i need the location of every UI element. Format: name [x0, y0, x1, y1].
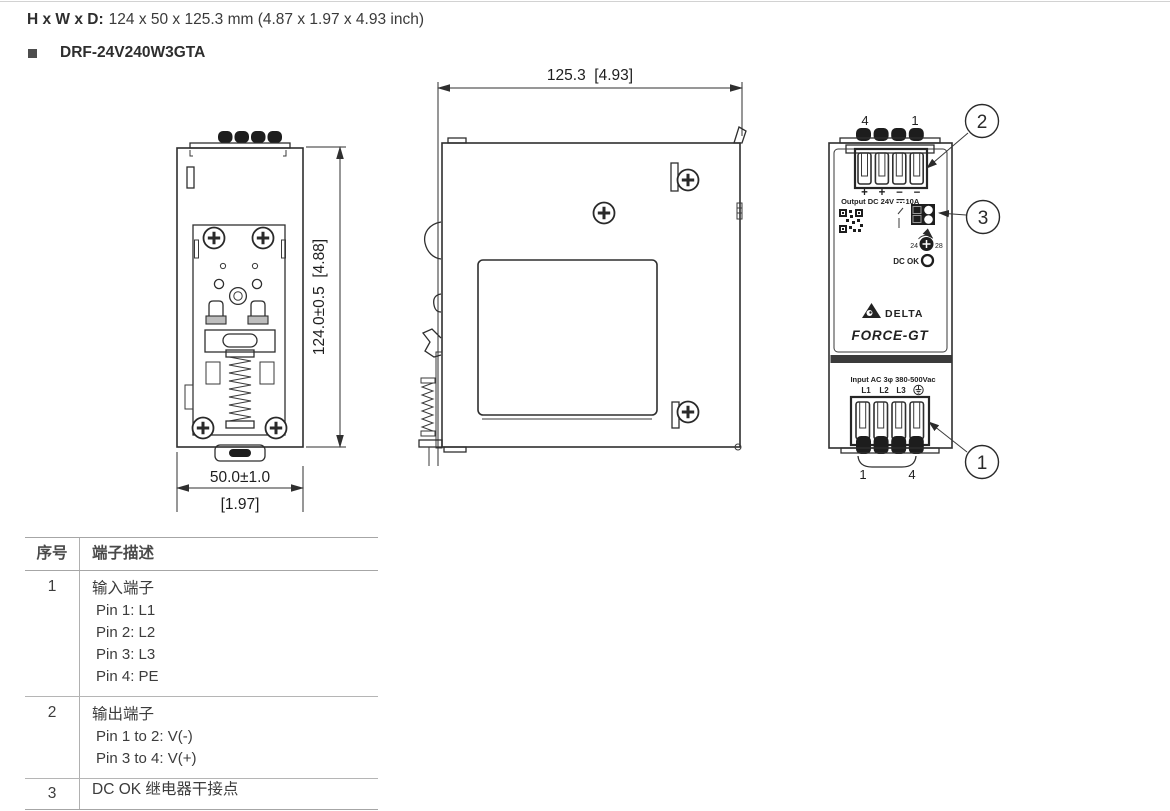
- din-clip-profile: [419, 222, 442, 466]
- output-terminal-block: [846, 145, 934, 188]
- dc-ok-led: [922, 255, 933, 266]
- output-pin1-label: 1: [911, 113, 918, 128]
- pilot-hole: [252, 263, 257, 268]
- brand-wordmark: DELTA: [885, 308, 923, 320]
- din-latch-spring: [226, 350, 254, 428]
- input-pin4-label: 4: [908, 467, 915, 482]
- pin-line: Pin 3 to 4: V(+): [92, 748, 378, 770]
- center-boss-inner: [234, 292, 242, 300]
- rear-vent-slot: [187, 167, 194, 188]
- input-pin-label: L3: [896, 386, 906, 395]
- rear-hook-left: [190, 150, 193, 156]
- side-vent-slot: [671, 163, 678, 191]
- table-row: 3 DC OK 继电器干接点: [25, 779, 378, 810]
- screw-icon: [678, 170, 699, 191]
- callout-1-number: 1: [977, 453, 988, 474]
- pilot-hole: [220, 263, 225, 268]
- callout-3-number: 3: [978, 208, 989, 229]
- input-pin-label: L2: [879, 386, 889, 395]
- dimensions-value: 124 x 50 x 125.3 mm (4.87 x 1.97 x 4.93 …: [109, 11, 424, 28]
- screw-icon: [253, 228, 274, 249]
- pin-line: Pin 2: L2: [92, 622, 378, 644]
- pin-range-brace: [858, 456, 916, 467]
- relay-contact-connector: [898, 204, 935, 228]
- delta-logo: DELTA: [862, 303, 923, 320]
- rear-view-drawing: 124.0±0.5 [4.88] 50.0±1.0 [1.97]: [177, 131, 346, 513]
- screw-icon: [204, 228, 225, 249]
- callout-2-number: 2: [977, 112, 988, 133]
- bullet-square-icon: [28, 49, 37, 58]
- table-row: 1 输入端子 Pin 1: L1 Pin 2: L2 Pin 3: L3 Pin…: [25, 571, 378, 697]
- dc-ok-indicator: DC OK: [893, 255, 933, 266]
- input-pin1-label: 1: [859, 467, 866, 482]
- series-name: FORCE-GT: [852, 328, 930, 343]
- width-dimension-mm: 50.0±1.0: [210, 469, 271, 486]
- pin-line: Pin 1 to 2: V(-): [92, 726, 378, 748]
- side-label-panel: [478, 260, 657, 419]
- front-dark-band: [831, 355, 952, 363]
- front-face-panel: [834, 149, 947, 352]
- voltage-adjust-pot: 24 28: [910, 235, 943, 251]
- adjust-min-label: 24: [910, 243, 918, 250]
- side-view-drawing: 125.3 [4.93]: [419, 67, 746, 466]
- table-header-description: 端子描述: [80, 538, 378, 570]
- side-ear-right: [260, 362, 274, 384]
- height-dimension: 124.0±0.5 [4.88]: [306, 147, 346, 447]
- page-top-divider: [0, 1, 1170, 2]
- callout-2: 2: [927, 105, 999, 169]
- pin-line: Pin 4: PE: [92, 666, 378, 688]
- callout-3: 3: [939, 201, 1000, 234]
- din-mid-bracket: [205, 330, 275, 352]
- center-boss: [230, 288, 247, 305]
- dc-ok-label: DC OK: [893, 257, 919, 266]
- row-number: 2: [25, 697, 80, 778]
- adjust-max-label: 28: [935, 243, 943, 250]
- datasheet-page: H x W x D:124 x 50 x 125.3 mm (4.87 x 1.…: [0, 0, 1170, 811]
- mount-hole: [214, 279, 223, 288]
- screw-icon: [266, 418, 287, 439]
- din-mount-plate: [193, 225, 287, 439]
- screw-icon: [594, 203, 615, 224]
- input-pin-row: L1 L2 L3: [861, 385, 923, 395]
- output-rating-label: Output DC 24V: [841, 197, 894, 206]
- pe-ground-icon: [914, 385, 923, 394]
- pin-line: Pin 3: L3: [92, 644, 378, 666]
- polarity-sign: −: [896, 187, 903, 199]
- side-top-tab: [734, 127, 746, 143]
- row-number: 1: [25, 571, 80, 696]
- input-rating-label: Input AC 3φ 380-500Vac: [850, 375, 935, 384]
- row-title: 输出端子: [92, 704, 378, 726]
- screw-icon: [678, 402, 699, 423]
- row-number: 3: [25, 779, 80, 809]
- rear-side-slot: [185, 385, 193, 409]
- input-pin-label: L1: [861, 386, 871, 395]
- screw-icon: [193, 418, 214, 439]
- side-ear-left: [206, 362, 220, 384]
- height-dimension-text: 124.0±0.5 [4.88]: [311, 239, 328, 355]
- table-row: 2 输出端子 Pin 1 to 2: V(-) Pin 3 to 4: V(+): [25, 697, 378, 779]
- rear-hook-right: [283, 150, 286, 156]
- front-view-drawing: 4 1: [829, 113, 952, 482]
- pin-line: Pin 1: L1: [92, 600, 378, 622]
- dimensions-heading: H x W x D:124 x 50 x 125.3 mm (4.87 x 1.…: [27, 11, 424, 29]
- qr-code: [839, 209, 863, 233]
- dc-symbol-icon: [897, 200, 905, 203]
- dimensions-label: H x W x D:: [27, 11, 104, 28]
- output-pin4-label: 4: [861, 113, 868, 128]
- mechanical-drawings: 124.0±0.5 [4.88] 50.0±1.0 [1.97] 125.3 […: [0, 60, 1170, 530]
- front-top-terminal-bumps: [856, 128, 924, 141]
- terminal-table: 序号 端子描述 1 输入端子 Pin 1: L1 Pin 2: L2 Pin 3…: [25, 537, 378, 810]
- mount-hole: [252, 279, 261, 288]
- rear-body-outline: [177, 148, 303, 447]
- row-title: 输入端子: [92, 578, 378, 600]
- depth-dimension-text: 125.3 [4.93]: [547, 67, 633, 84]
- rear-top-terminal-bumps: [218, 131, 282, 143]
- width-dimension-inch: [1.97]: [221, 496, 260, 513]
- row-title: DC OK 继电器干接点: [92, 779, 378, 801]
- table-header-row: 序号 端子描述: [25, 537, 378, 571]
- output-rating-row: Output DC 24V 10A: [841, 197, 920, 206]
- table-header-index: 序号: [25, 538, 80, 570]
